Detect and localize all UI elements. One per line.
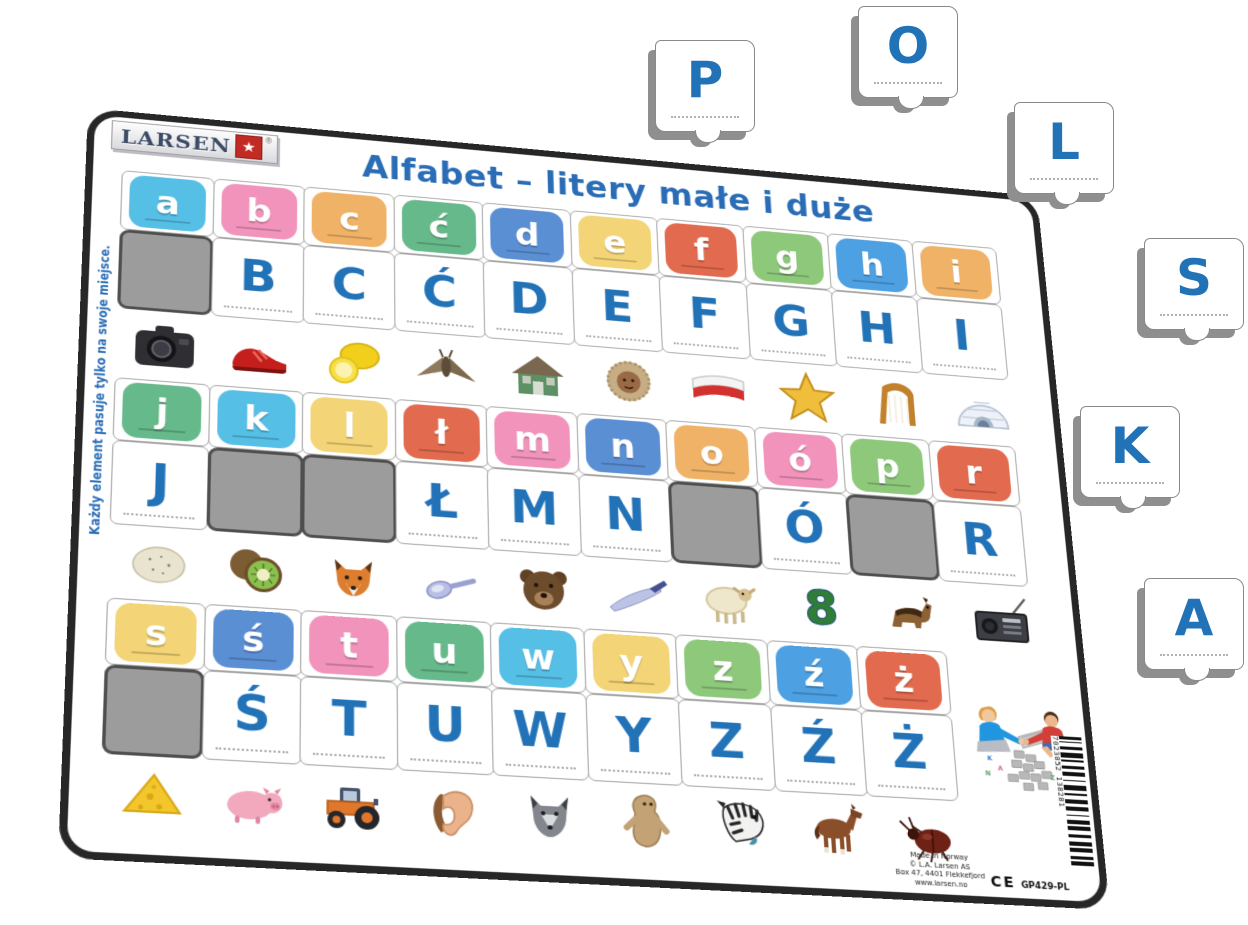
sheep-image: [682, 563, 778, 641]
tile-s: s: [114, 602, 197, 665]
piece-upper-Ś: Ś: [201, 670, 302, 765]
yeti-image: [597, 781, 696, 862]
tile-ź: ź: [775, 645, 854, 706]
number-8-image: 8: [774, 570, 870, 647]
tile-l: l: [311, 396, 388, 456]
tile-d: d: [490, 207, 565, 264]
piece-lower-ł: ł: [395, 399, 489, 468]
piece-upper-D: D: [483, 260, 575, 345]
cheese-image: [100, 754, 204, 838]
piece-lower-r: r: [928, 440, 1021, 507]
piece-upper-G: G: [745, 283, 838, 367]
piece-lower-w: w: [490, 622, 587, 693]
piece-lower-ź: ź: [766, 640, 862, 710]
empty-slot: [845, 494, 940, 581]
piece-lower-ż: ż: [856, 646, 952, 716]
svg-text:A: A: [998, 765, 1004, 773]
piece-lower-ć: ć: [393, 194, 484, 260]
empty-slot: [117, 229, 213, 316]
puzzle-board-surface: LARSEN ★ ® Alfabet – litery małe i duże …: [67, 115, 1102, 902]
dog-image: [864, 576, 960, 653]
kiwi-image: [207, 531, 305, 611]
piece-upper-C: C: [303, 245, 396, 331]
piece-lower-m: m: [486, 406, 580, 474]
star-image: [761, 360, 854, 434]
piece-lower-z: z: [675, 634, 771, 705]
piece-lower-f: f: [656, 218, 747, 283]
product-photo: LARSEN ★ ® Alfabet – litery małe i duże …: [0, 0, 1248, 925]
fox-image: [305, 537, 402, 616]
piece-lower-p: p: [841, 433, 934, 500]
piece-lower-y: y: [583, 628, 680, 699]
tile-i: i: [919, 245, 993, 301]
piece-lower-n: n: [576, 413, 670, 481]
letter-grid: abcćdefghiBCĆDEFGHIjklłmnoóprJŁMNÓR8sśtu…: [100, 170, 1071, 882]
piece-lower-d: d: [482, 202, 573, 268]
tile-ó: ó: [762, 431, 838, 490]
tile-c: c: [312, 191, 387, 249]
side-note: Każdy element pasuje tylko na swoje miej…: [87, 244, 113, 535]
tile-ż: ż: [865, 650, 944, 711]
tile-g: g: [750, 230, 824, 286]
piece-upper-N: N: [578, 474, 673, 562]
camera-image: [116, 308, 213, 385]
piece-lower-j: j: [113, 377, 211, 447]
tile-e: e: [578, 214, 652, 271]
piece-lower-a: a: [120, 170, 215, 237]
piece-lower-s: s: [105, 597, 206, 670]
tile-n: n: [584, 417, 661, 476]
svg-text:K: K: [987, 755, 993, 763]
loose-piece-K: K: [1080, 406, 1180, 498]
piece-upper-Ż: Ż: [861, 710, 960, 801]
loose-piece-S: S: [1144, 238, 1244, 330]
wolf-image: [500, 776, 599, 858]
piece-upper-M: M: [487, 467, 582, 556]
piece-upper-I: I: [916, 297, 1009, 380]
piece-upper-W: W: [491, 688, 589, 781]
piece-upper-T: T: [300, 676, 399, 770]
tile-w: w: [499, 627, 578, 689]
tractor-image: [303, 765, 403, 848]
larsen-logo-text: LARSEN: [121, 124, 232, 157]
piece-lower-ó: ó: [754, 427, 847, 494]
imprint-text: Made in Norway © L.A. Larsen AS Box 47, …: [894, 850, 986, 890]
piece-lower-l: l: [302, 392, 397, 461]
empty-slot: [301, 454, 397, 544]
tile-m: m: [494, 410, 571, 469]
loose-piece-O: O: [858, 6, 958, 98]
svg-text:N: N: [985, 770, 991, 778]
lemon-image: [306, 323, 400, 399]
tile-ł: ł: [403, 403, 480, 463]
knife-image: [589, 557, 685, 635]
piece-upper-Ł: Ł: [395, 461, 490, 550]
tile-ć: ć: [402, 199, 477, 256]
piece-lower-g: g: [742, 226, 832, 291]
tile-a: a: [129, 175, 207, 233]
loose-piece-P: P: [655, 40, 755, 132]
piece-upper-Y: Y: [585, 693, 683, 786]
loose-piece-A: A: [1144, 578, 1244, 670]
piece-upper-J: J: [110, 440, 210, 531]
harp-image: [849, 368, 942, 442]
piece-lower-k: k: [208, 384, 304, 453]
tile-p: p: [849, 438, 925, 496]
foal-image: [787, 792, 886, 873]
tile-y: y: [592, 633, 671, 695]
egg-image: [108, 524, 208, 604]
piece-upper-R: R: [933, 500, 1028, 587]
zebra-image: [692, 787, 791, 868]
tile-t: t: [309, 615, 389, 678]
tile-b: b: [221, 183, 297, 241]
ear-image: [403, 770, 502, 852]
piece-lower-i: i: [911, 241, 1001, 305]
piece-lower-h: h: [827, 233, 917, 297]
tile-h: h: [835, 237, 909, 293]
tile-j: j: [122, 382, 202, 443]
piece-upper-Ź: Ź: [770, 705, 868, 797]
radio-image: [954, 582, 1049, 658]
shoe-image: [212, 316, 307, 392]
piece-upper-H: H: [831, 290, 924, 373]
tile-f: f: [664, 222, 738, 278]
piece-upper-Z: Z: [678, 699, 776, 791]
piece-upper-E: E: [571, 268, 663, 353]
tile-k: k: [217, 389, 296, 449]
tile-u: u: [405, 621, 484, 683]
piece-lower-o: o: [665, 420, 758, 488]
tile-r: r: [936, 444, 1012, 502]
piece-lower-b: b: [212, 178, 305, 245]
house-image: [491, 338, 584, 413]
tile-ś: ś: [212, 608, 293, 671]
piece-upper-U: U: [396, 682, 494, 776]
polish-flag-image: [672, 353, 765, 427]
puzzle-board: LARSEN ★ ® Alfabet – litery małe i duże …: [58, 108, 1110, 910]
piece-lower-c: c: [303, 186, 395, 252]
piece-upper-F: F: [659, 275, 751, 359]
ce-mark: CE: [990, 874, 1017, 892]
loose-piece-L: L: [1014, 102, 1114, 194]
bear-image: [496, 550, 592, 628]
piece-lower-ś: ś: [203, 604, 302, 676]
eskimo-image: [582, 346, 675, 421]
moth-image: [400, 331, 493, 406]
piece-lower-u: u: [396, 616, 493, 688]
empty-slot: [206, 447, 303, 537]
piece-lower-e: e: [569, 210, 660, 275]
piece-upper-B: B: [211, 237, 305, 323]
piece-lower-t: t: [300, 610, 398, 682]
piece-upper-Ó: Ó: [757, 487, 852, 575]
product-code: GP429-PL: [1021, 880, 1070, 893]
tile-z: z: [684, 639, 763, 700]
svg-text:8: 8: [803, 580, 840, 636]
empty-slot: [102, 664, 205, 759]
piece-upper-Ć: Ć: [394, 253, 486, 338]
pig-image: [202, 759, 304, 842]
igloo-image: [936, 375, 1029, 448]
tile-o: o: [674, 424, 751, 483]
spoon-image: [401, 544, 497, 623]
empty-slot: [668, 481, 763, 569]
